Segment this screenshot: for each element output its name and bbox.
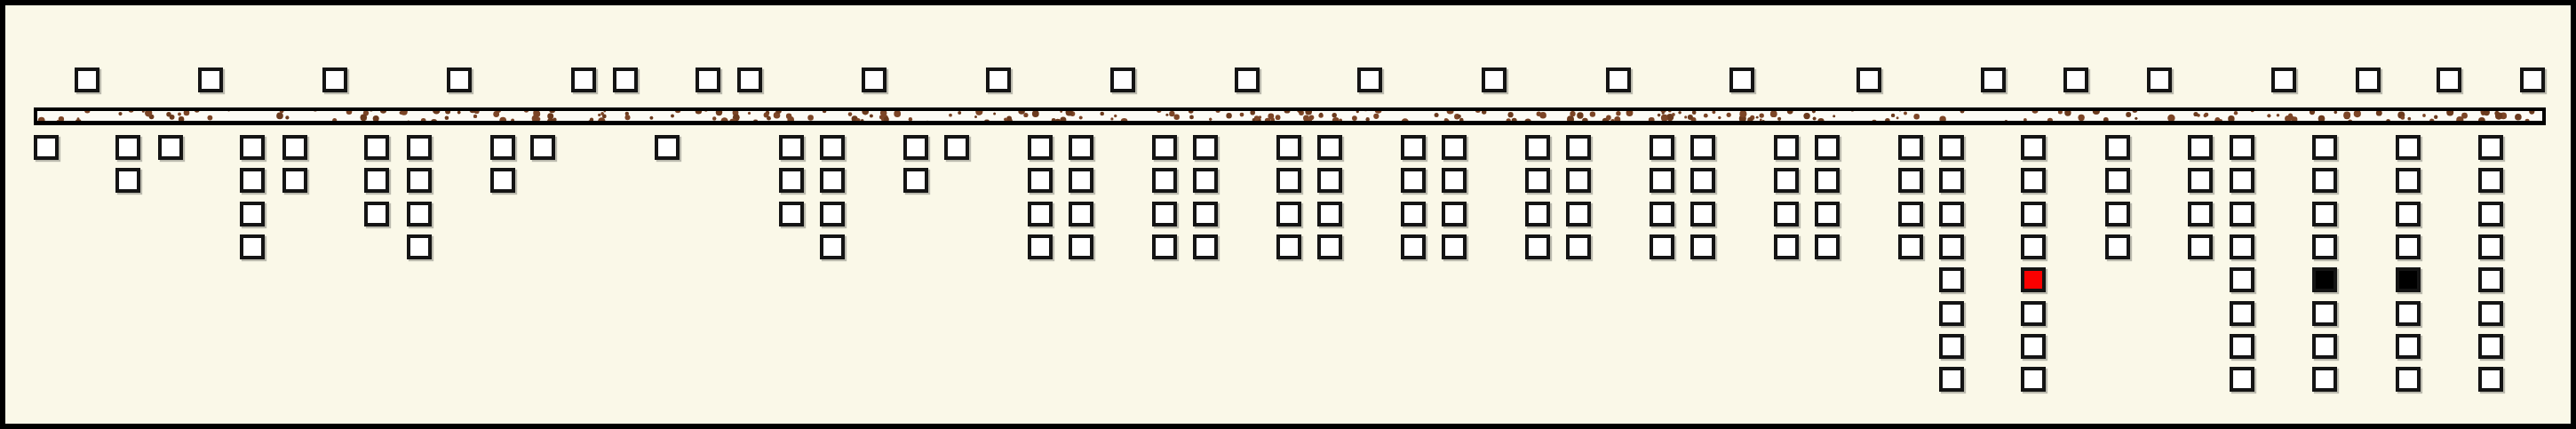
grid-square[interactable] (1276, 168, 1301, 193)
soil-speckle-dot (958, 111, 961, 115)
top-row-square[interactable] (1110, 68, 1135, 92)
grid-square[interactable] (2478, 301, 2503, 326)
grid-square[interactable] (1525, 135, 1550, 160)
top-row-square[interactable] (2437, 68, 2461, 92)
grid-square[interactable] (282, 135, 307, 160)
grid-square[interactable] (779, 168, 804, 193)
grid-square[interactable] (1276, 234, 1301, 259)
soil-speckle-dot (401, 111, 408, 115)
grid-square[interactable] (2396, 234, 2421, 259)
grid-square[interactable] (2230, 202, 2254, 226)
grid-square[interactable] (779, 202, 804, 226)
selected-square-red[interactable] (2021, 267, 2046, 292)
grid-square[interactable] (1650, 135, 1674, 160)
grid-square[interactable] (490, 135, 515, 160)
soil-speckle-dot (370, 111, 373, 112)
grid-square[interactable] (1815, 168, 1840, 193)
grid-square[interactable] (2230, 168, 2254, 193)
soil-speckle-dot (2429, 119, 2434, 122)
soil-speckle-dot (1570, 111, 1575, 116)
grid-square[interactable] (2188, 168, 2213, 193)
soil-speckle-dot (1872, 120, 1877, 121)
grid-square[interactable] (655, 135, 680, 160)
grid-square[interactable] (1566, 202, 1591, 226)
top-row-square[interactable] (1235, 68, 1260, 92)
grid-square[interactable] (1028, 234, 1053, 259)
grid-square[interactable] (115, 135, 140, 160)
soil-speckle-dot (2434, 115, 2437, 119)
grid-square[interactable] (1028, 202, 1053, 226)
soil-speckle-dot (2205, 113, 2209, 117)
soil-speckle-dot (1209, 118, 1212, 121)
grid-square[interactable] (2230, 301, 2254, 326)
soil-speckle-dot (1762, 120, 1765, 121)
top-row-square[interactable] (2271, 68, 2296, 92)
grid-square[interactable] (2478, 267, 2503, 292)
soil-speckle-dot (445, 111, 450, 115)
soil-speckle-dot (993, 112, 996, 115)
grid-square[interactable] (2021, 334, 2046, 359)
soil-speckle-dot (511, 119, 514, 121)
soil-speckle-dot (2277, 114, 2280, 117)
top-row-square[interactable] (862, 68, 886, 92)
soil-speckle-dot (1276, 115, 1281, 120)
grid-square[interactable] (1815, 234, 1840, 259)
grid-square[interactable] (530, 135, 555, 160)
grid-square[interactable] (490, 168, 515, 193)
grid-square[interactable] (820, 135, 845, 160)
soil-speckle-dot (1590, 111, 1595, 116)
grid-square[interactable] (2021, 234, 2046, 259)
soil-speckle-dot (1891, 114, 1895, 117)
grid-square[interactable] (34, 135, 59, 160)
top-row-square[interactable] (2520, 68, 2545, 92)
soil-speckle-dot (407, 121, 409, 122)
grid-square[interactable] (2396, 202, 2421, 226)
soil-speckle-dot (380, 111, 386, 114)
soil-speckle-dot (178, 113, 181, 116)
grid-square[interactable] (1069, 135, 1093, 160)
grid-square[interactable] (1401, 234, 1426, 259)
soil-speckle-dot (1215, 111, 1220, 113)
soil-speckle-dot (2103, 117, 2109, 121)
grid-square[interactable] (2312, 334, 2337, 359)
grid-square[interactable] (1276, 135, 1301, 160)
grid-square[interactable] (240, 202, 265, 226)
soil-speckle-dot (179, 116, 184, 121)
soil-speckle-dot (1817, 118, 1824, 121)
grid-square[interactable] (1566, 234, 1591, 259)
soil-speckle-dot (1885, 118, 1890, 121)
soil-speckle-dot (974, 115, 977, 118)
grid-square[interactable] (1152, 202, 1177, 226)
grid-square[interactable] (1939, 168, 1964, 193)
grid-square[interactable] (1317, 202, 1342, 226)
grid-square[interactable] (240, 135, 265, 160)
grid-square[interactable] (1152, 234, 1177, 259)
soil-speckle-dot (1332, 117, 1340, 121)
soil-speckle-dot (1060, 116, 1066, 121)
grid-square[interactable] (2312, 135, 2337, 160)
grid-square[interactable] (1939, 267, 1964, 292)
grid-square[interactable] (2478, 135, 2503, 160)
soil-speckle-texture (37, 111, 2542, 121)
soil-speckle-dot (1444, 118, 1449, 121)
soil-speckle-dot (195, 111, 200, 113)
soil-speckle-dot (1512, 118, 1517, 121)
grid-square[interactable] (1401, 202, 1426, 226)
grid-square[interactable] (2188, 202, 2213, 226)
soil-speckle-dot (1787, 111, 1793, 114)
top-row-square[interactable] (2063, 68, 2088, 92)
soil-speckle-dot (1713, 111, 1716, 114)
grid-square[interactable] (2478, 234, 2503, 259)
grid-square[interactable] (779, 135, 804, 160)
grid-square[interactable] (1193, 168, 1218, 193)
top-row-square[interactable] (75, 68, 99, 92)
soil-speckle-dot (285, 115, 289, 119)
top-row-square[interactable] (613, 68, 638, 92)
soil-speckle-dot (1373, 114, 1379, 119)
grid-square[interactable] (2312, 202, 2337, 226)
grid-square[interactable] (1650, 234, 1674, 259)
grid-square[interactable] (1401, 168, 1426, 193)
grid-square[interactable] (1028, 168, 1053, 193)
grid-square[interactable] (2396, 301, 2421, 326)
grid-square[interactable] (2478, 168, 2503, 193)
soil-speckle-dot (1960, 111, 1965, 114)
grid-square[interactable] (820, 168, 845, 193)
grid-square[interactable] (1525, 168, 1550, 193)
grid-square[interactable] (1690, 234, 1715, 259)
soil-speckle-dot (1684, 115, 1687, 118)
grid-square[interactable] (2021, 367, 2046, 392)
soil-speckle-dot (314, 111, 318, 112)
grid-square[interactable] (2021, 168, 2046, 193)
soil-speckle-dot (1537, 112, 1541, 116)
soil-speckle-dot (1121, 118, 1128, 121)
grid-square[interactable] (2230, 135, 2254, 160)
grid-square[interactable] (2105, 234, 2130, 259)
grid-square[interactable] (2396, 334, 2421, 359)
grid-square[interactable] (1939, 334, 1964, 359)
grid-square[interactable] (1898, 234, 1923, 259)
grid-square[interactable] (1069, 168, 1093, 193)
soil-speckle-dot (118, 112, 122, 115)
top-row-square[interactable] (737, 68, 762, 92)
soil-speckle-dot (807, 115, 814, 121)
soil-speckle-dot (2193, 112, 2198, 116)
grid-square[interactable] (1317, 168, 1342, 193)
top-row-square[interactable] (1606, 68, 1631, 92)
soil-speckle-dot (1157, 111, 1162, 113)
soil-speckle-dot (1250, 111, 1255, 115)
grid-square[interactable] (2312, 168, 2337, 193)
soil-speckle-dot (704, 111, 708, 112)
soil-speckle-dot (2126, 112, 2131, 117)
soil-speckle-dot (716, 111, 722, 115)
top-row-square[interactable] (696, 68, 720, 92)
grid-square[interactable] (1690, 135, 1715, 160)
soil-speckle-dot (1060, 111, 1062, 113)
grid-square[interactable] (364, 135, 389, 160)
filled-square-black[interactable] (2312, 267, 2337, 292)
grid-square[interactable] (1193, 135, 1218, 160)
grid-square[interactable] (1650, 168, 1674, 193)
grid-square[interactable] (1650, 202, 1674, 226)
grid-square[interactable] (1525, 202, 1550, 226)
top-row-square[interactable] (1482, 68, 1507, 92)
soil-speckle-dot (1356, 111, 1359, 113)
soil-speckle-dot (1662, 112, 1665, 115)
grid-square[interactable] (1442, 168, 1467, 193)
grid-square[interactable] (2478, 334, 2503, 359)
grid-square[interactable] (2188, 135, 2213, 160)
soil-speckle-dot (2481, 112, 2485, 115)
top-row-square[interactable] (322, 68, 347, 92)
grid-square[interactable] (903, 135, 928, 160)
grid-square[interactable] (2478, 202, 2503, 226)
soil-speckle-dot (2494, 111, 2499, 115)
grid-square[interactable] (158, 135, 183, 160)
grid-square[interactable] (2230, 267, 2254, 292)
grid-square[interactable] (1317, 135, 1342, 160)
top-row-square[interactable] (1981, 68, 2006, 92)
grid-square[interactable] (1690, 202, 1715, 226)
grid-square[interactable] (820, 234, 845, 259)
grid-square[interactable] (2105, 168, 2130, 193)
soil-speckle-dot (1458, 115, 1461, 118)
soil-speckle-dot (2267, 114, 2270, 117)
grid-square[interactable] (407, 234, 432, 259)
grid-square[interactable] (1690, 168, 1715, 193)
grid-square[interactable] (1939, 301, 1964, 326)
grid-square[interactable] (1028, 135, 1053, 160)
grid-square[interactable] (364, 168, 389, 193)
soil-speckle-dot (2078, 115, 2084, 121)
soil-speckle-dot (1777, 117, 1781, 121)
grid-square[interactable] (2105, 202, 2130, 226)
soil-speckle-dot (2343, 112, 2350, 119)
grid-square[interactable] (2396, 135, 2421, 160)
soil-speckle-dot (894, 111, 901, 117)
grid-square[interactable] (2396, 367, 2421, 392)
grid-square[interactable] (1939, 367, 1964, 392)
grid-square[interactable] (2478, 367, 2503, 392)
soil-speckle-dot (84, 111, 90, 114)
grid-square[interactable] (1442, 234, 1467, 259)
soil-speckle-dot (1402, 118, 1409, 121)
soil-speckle-dot (823, 111, 827, 113)
soil-speckle-dot (1606, 115, 1611, 121)
soil-speckle-dot (2234, 111, 2238, 115)
filled-square-black[interactable] (2396, 267, 2421, 292)
grid-square[interactable] (282, 168, 307, 193)
soil-speckle-dot (1614, 116, 1620, 121)
grid-square[interactable] (1898, 202, 1923, 226)
grid-square[interactable] (2230, 234, 2254, 259)
grid-square[interactable] (1815, 202, 1840, 226)
top-row-square[interactable] (2147, 68, 2172, 92)
grid-square[interactable] (407, 202, 432, 226)
top-row-square[interactable] (1357, 68, 1382, 92)
soil-speckle-dot (598, 114, 600, 116)
top-row-square[interactable] (198, 68, 223, 92)
grid-square[interactable] (1193, 234, 1218, 259)
soil-speckle-dot (549, 111, 555, 113)
grid-square[interactable] (1939, 202, 1964, 226)
soil-speckle-dot (848, 112, 853, 116)
grid-square[interactable] (407, 168, 432, 193)
soil-speckle-dot (1582, 118, 1588, 121)
grid-square[interactable] (820, 202, 845, 226)
timeline-canvas (0, 0, 2576, 429)
soil-speckle-dot (1704, 114, 1708, 118)
soil-speckle-dot (2167, 115, 2174, 121)
grid-square[interactable] (1442, 135, 1467, 160)
soil-speckle-dot (1023, 113, 1028, 117)
grid-square[interactable] (2312, 367, 2337, 392)
grid-square[interactable] (1939, 135, 1964, 160)
grid-square[interactable] (2230, 367, 2254, 392)
grid-square[interactable] (1566, 135, 1591, 160)
soil-speckle-dot (2401, 115, 2405, 120)
soil-speckle-dot (2446, 111, 2453, 115)
soil-speckle-dot (1482, 111, 1486, 115)
grid-square[interactable] (2021, 202, 2046, 226)
soil-speckle-dot (1340, 119, 1342, 121)
soil-speckle-dot (1803, 113, 1809, 119)
soil-speckle-dot (870, 115, 873, 118)
soil-speckle-dot (2228, 115, 2234, 121)
soil-speckle-dot (1524, 119, 1530, 122)
grid-square[interactable] (1152, 135, 1177, 160)
grid-square[interactable] (2230, 334, 2254, 359)
grid-square[interactable] (1566, 168, 1591, 193)
soil-speckle-dot (1110, 117, 1113, 120)
top-row-square[interactable] (986, 68, 1011, 92)
grid-square[interactable] (2021, 135, 2046, 160)
grid-square[interactable] (1815, 135, 1840, 160)
soil-speckle-dot (2310, 111, 2315, 115)
soil-speckle-dot (2422, 114, 2426, 117)
soil-speckle-dot (499, 117, 506, 121)
soil-speckle-dot (1616, 111, 1620, 115)
soil-speckle-dot (184, 111, 190, 115)
soil-speckle-dot (2529, 111, 2534, 115)
soil-speckle-dot (1475, 111, 1481, 113)
soil-speckle-dot (1913, 114, 1920, 120)
soil-speckle-dot (553, 118, 556, 122)
soil-speckle-dot (861, 119, 864, 121)
grid-square[interactable] (2021, 301, 2046, 326)
soil-speckle-dot (1692, 111, 1697, 115)
soil-speckle-dot (590, 118, 593, 122)
soil-speckle-dot (2515, 114, 2522, 121)
grid-square[interactable] (1317, 234, 1342, 259)
grid-square[interactable] (1939, 234, 1964, 259)
soil-speckle-dot (1366, 117, 1370, 121)
soil-speckle-dot (909, 117, 912, 121)
top-row-square[interactable] (571, 68, 596, 92)
grid-square[interactable] (1774, 135, 1799, 160)
grid-square[interactable] (903, 168, 928, 193)
soil-speckle-dot (2407, 117, 2411, 121)
grid-square[interactable] (1442, 202, 1467, 226)
soil-speckle-dot (2251, 111, 2254, 112)
soil-speckle-dot (433, 111, 440, 115)
grid-square[interactable] (2105, 135, 2130, 160)
soil-speckle-dot (1626, 111, 1634, 116)
grid-square[interactable] (1152, 168, 1177, 193)
soil-speckle-dot (1319, 113, 1323, 116)
top-row-square[interactable] (447, 68, 472, 92)
soil-speckle-dot (1770, 111, 1777, 117)
top-row-square[interactable] (2356, 68, 2381, 92)
grid-square[interactable] (2188, 234, 2213, 259)
grid-square[interactable] (1069, 202, 1093, 226)
grid-square[interactable] (2312, 234, 2337, 259)
grid-square[interactable] (2312, 301, 2337, 326)
top-row-square[interactable] (1729, 68, 1754, 92)
grid-square[interactable] (407, 135, 432, 160)
grid-square[interactable] (1193, 202, 1218, 226)
soil-speckle-dot (2064, 111, 2071, 116)
grid-square[interactable] (1525, 234, 1550, 259)
soil-speckle-dot (2032, 111, 2039, 114)
soil-speckle-dot (1375, 111, 1382, 114)
grid-square[interactable] (1276, 202, 1301, 226)
grid-square[interactable] (1898, 168, 1923, 193)
soil-speckle-dot (1305, 111, 1312, 115)
soil-speckle-dot (421, 118, 426, 121)
soil-speckle-dot (2132, 111, 2137, 113)
top-row-square[interactable] (1856, 68, 1881, 92)
soil-speckle-dot (712, 116, 716, 120)
soil-speckle-dot (767, 116, 771, 121)
soil-speckle-dot (1833, 115, 1835, 117)
soil-speckle-dot (431, 119, 437, 121)
soil-speckle-dot (1688, 115, 1693, 120)
ground-band (34, 107, 2546, 125)
soil-speckle-dot (1896, 116, 1899, 119)
grid-square[interactable] (240, 168, 265, 193)
grid-square[interactable] (115, 168, 140, 193)
grid-square[interactable] (1069, 234, 1093, 259)
soil-speckle-dot (696, 111, 703, 115)
soil-speckle-dot (1100, 112, 1104, 116)
soil-speckle-dot (473, 115, 477, 118)
soil-speckle-dot (1760, 119, 1762, 122)
grid-square[interactable] (1774, 202, 1799, 226)
grid-square[interactable] (1898, 135, 1923, 160)
grid-square[interactable] (944, 135, 969, 160)
soil-speckle-dot (1939, 116, 1945, 122)
soil-speckle-dot (748, 112, 751, 115)
grid-square[interactable] (2396, 168, 2421, 193)
soil-speckle-dot (1169, 111, 1174, 116)
soil-speckle-dot (2386, 119, 2390, 121)
grid-square[interactable] (364, 202, 389, 226)
soil-speckle-dot (276, 113, 283, 120)
soil-speckle-dot (1114, 115, 1117, 117)
soil-speckle-dot (1165, 114, 1168, 116)
grid-square[interactable] (240, 234, 265, 259)
grid-square[interactable] (1401, 135, 1426, 160)
grid-square[interactable] (1774, 168, 1799, 193)
soil-speckle-dot (2478, 117, 2485, 121)
grid-square[interactable] (1774, 234, 1799, 259)
